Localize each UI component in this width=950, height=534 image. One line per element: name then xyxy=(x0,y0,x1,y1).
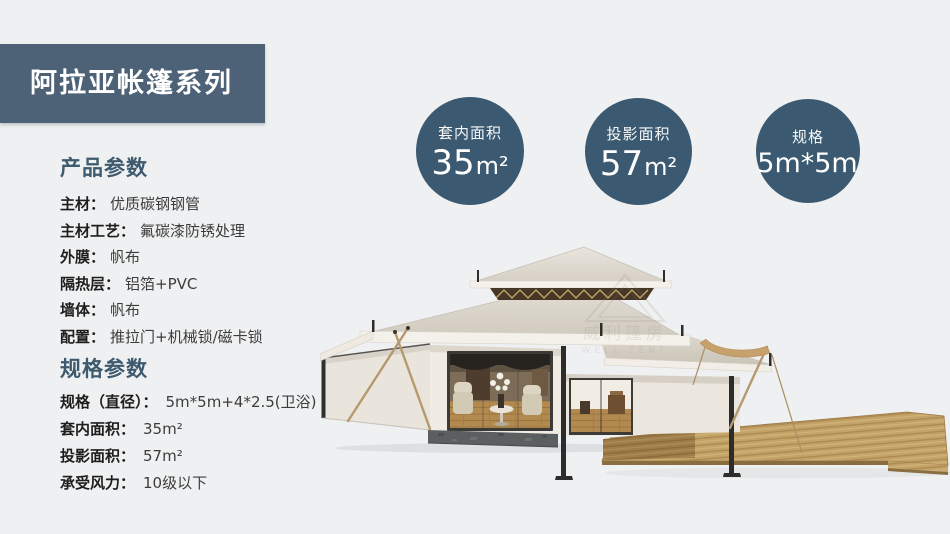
badge-value: 5m*5m xyxy=(757,150,857,177)
param-value: 优质碳钢钢管 xyxy=(110,195,200,213)
badge-label: 规格 xyxy=(792,126,824,147)
badge-unit: m² xyxy=(644,155,677,179)
brochure-page: 阿拉亚帐篷系列 产品参数 主材：优质碳钢钢管 主材工艺：氟碳漆防锈处理 外膜：帆… xyxy=(0,0,950,534)
watermark-en: WELL TENT xyxy=(582,346,669,356)
param-label: 隔热层： xyxy=(60,275,120,293)
badge-value: 35 xyxy=(431,146,474,180)
badge-projection-area: 投影面积 57m² xyxy=(585,98,692,205)
doorway-interior xyxy=(571,380,631,432)
param-value: 35m² xyxy=(143,420,183,438)
badge-label: 投影面积 xyxy=(606,123,670,144)
param-label: 承受风力： xyxy=(60,474,135,492)
param-value: 帆布 xyxy=(110,301,140,319)
product-params-heading: 产品参数 xyxy=(60,156,375,181)
badge-value: 57 xyxy=(600,147,643,181)
param-label: 主材工艺： xyxy=(60,222,135,240)
cap-fascia xyxy=(470,281,671,288)
param-label: 墙体： xyxy=(60,301,105,319)
series-title-banner: 阿拉亚帐篷系列 xyxy=(0,44,265,123)
badge-interior-area: 套内面积 35m² xyxy=(416,97,524,205)
param-label: 投影面积： xyxy=(60,447,135,465)
main-wall xyxy=(428,345,563,447)
watermark-cn: 威利篷房 xyxy=(583,324,667,344)
annex-wall xyxy=(563,374,740,436)
badge-unit: m² xyxy=(476,154,509,178)
param-label: 配置： xyxy=(60,328,105,346)
param-label: 主材： xyxy=(60,195,105,213)
param-value: 铝箔+PVC xyxy=(125,275,197,293)
tent-product-image: 威利篷房 WELL TENT xyxy=(320,225,950,525)
badge-size: 规格 5m*5m xyxy=(756,99,860,203)
cap-roof xyxy=(473,247,668,282)
badge-label: 套内面积 xyxy=(438,122,502,143)
param-label: 外膜： xyxy=(60,248,105,266)
param-value: 帆布 xyxy=(110,248,140,266)
param-value: 氟碳漆防锈处理 xyxy=(140,222,245,240)
param-value: 推拉门+机械锁/磁卡锁 xyxy=(110,328,263,346)
param-label: 套内面积： xyxy=(60,420,135,438)
param-value: 5m*5m+4*2.5(卫浴) xyxy=(166,393,317,411)
param-row: 主材：优质碳钢钢管 xyxy=(60,191,375,218)
param-value: 57m² xyxy=(143,447,183,465)
series-title: 阿拉亚帐篷系列 xyxy=(30,68,233,99)
param-label: 规格（直径）： xyxy=(60,393,158,411)
window-interior xyxy=(450,354,550,428)
param-value: 10级以下 xyxy=(143,474,207,492)
